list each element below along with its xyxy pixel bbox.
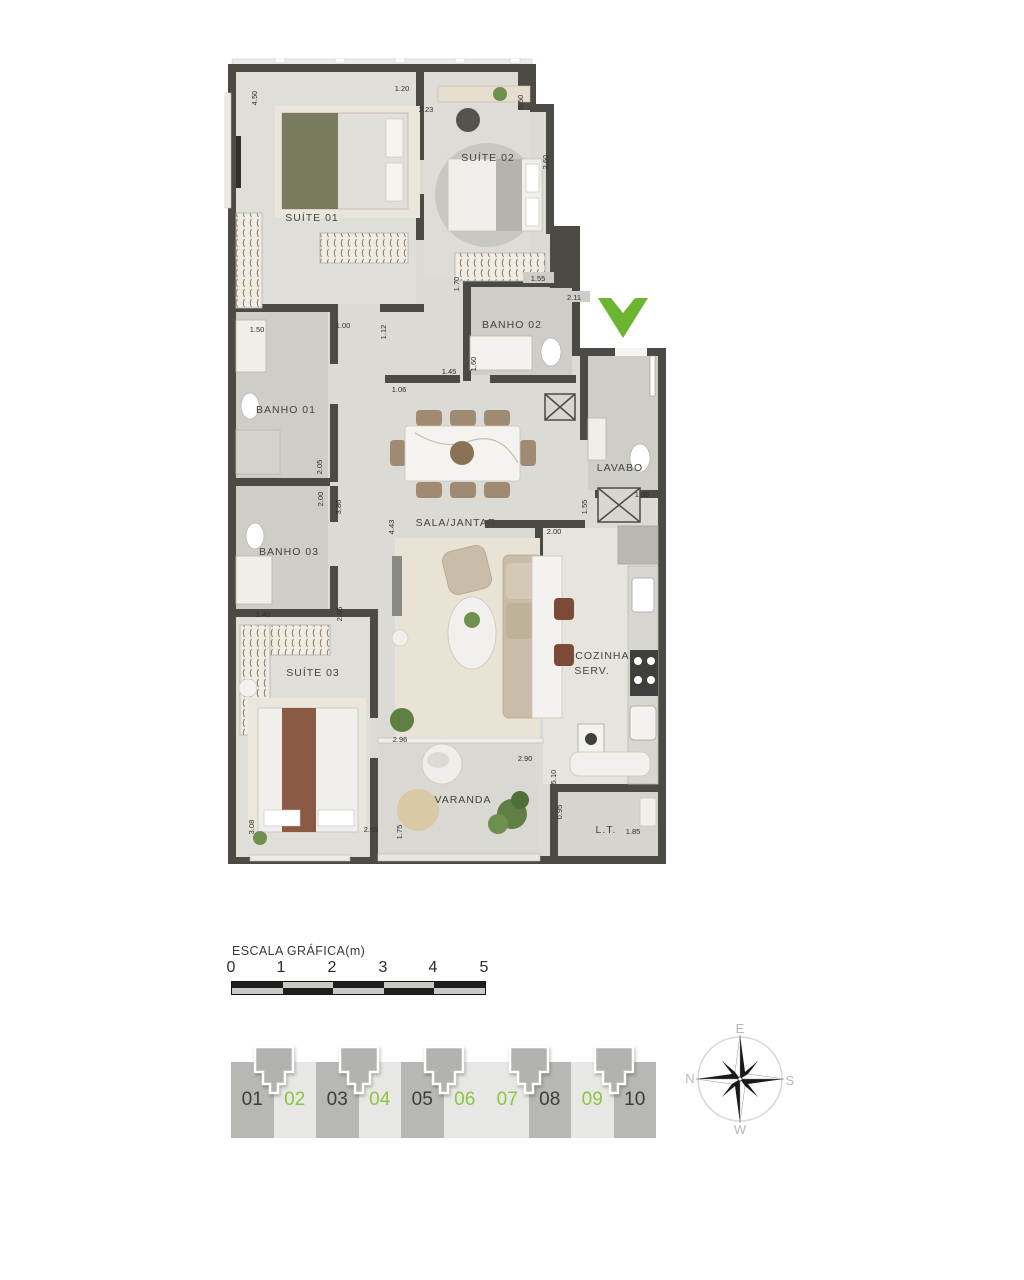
- unit-selector: 01 02 03 04 05 06 07 08 09 10: [231, 1044, 656, 1140]
- core-connector-icon: [422, 1044, 466, 1096]
- scale-bar-segment: [283, 988, 334, 994]
- dimension-label: 2.00: [316, 492, 325, 507]
- dimension-label: 1.60: [469, 357, 478, 372]
- dimension-label: 2.60: [541, 155, 550, 170]
- dimension-label: 2.96: [393, 735, 408, 744]
- dimension-label: 2.00: [547, 527, 562, 536]
- dimension-label: 1.35: [635, 490, 650, 499]
- living-area: [390, 538, 543, 738]
- room-label-cozinha-2: SERV.: [574, 665, 609, 677]
- room-label-lavabo: LAVABO: [597, 462, 643, 474]
- dimension-label: 4.50: [250, 91, 259, 106]
- scale-tick: 5: [480, 959, 489, 977]
- scale-ticks: 0 1 2 3 4 5: [231, 959, 484, 977]
- scale-tick: 3: [379, 959, 388, 977]
- compass-label-north: N: [685, 1071, 694, 1086]
- compass-center: [738, 1077, 742, 1081]
- dimension-label: 1.06: [392, 385, 407, 394]
- dimension-label: 1.85: [626, 827, 641, 836]
- dimension-label: 1.20: [395, 84, 410, 93]
- furniture-suite-03: [239, 679, 366, 845]
- dimension-label: 2.23: [419, 105, 434, 114]
- floor-plan: 4.50 1.20 2.23 0.50 2.60 1.70 1.55 2.11 …: [220, 58, 670, 868]
- scale-title: ESCALA GRÁFICA(m): [232, 944, 365, 958]
- scale-bar-segment: [232, 988, 283, 994]
- dimension-label: 2.05: [335, 607, 344, 622]
- core-connector-icon: [337, 1044, 381, 1096]
- dimension-label: 4.43: [387, 520, 396, 535]
- room-label-cozinha-1: COZINHA /: [575, 650, 637, 662]
- dimension-label: 2.11: [567, 293, 581, 302]
- green-check-icon: [598, 298, 648, 338]
- dimension-label: 1.12: [379, 325, 388, 340]
- scale-bar-segment: [434, 988, 485, 994]
- page: 4.50 1.20 2.23 0.50 2.60 1.70 1.55 2.11 …: [0, 0, 1024, 1280]
- dimension-label: 5.10: [549, 770, 558, 785]
- dimension-label: 0.95: [555, 805, 564, 820]
- room-label-suite-03: SUÍTE 03: [286, 666, 340, 679]
- dimension-label: 2.65: [364, 825, 379, 834]
- room-label-lt: L.T.: [596, 824, 617, 836]
- room-label-suite-01: SUÍTE 01: [285, 211, 339, 224]
- room-label-banho-01: BANHO 01: [256, 404, 316, 416]
- dimension-label: 1.45: [442, 367, 457, 376]
- dimension-label: 1.55: [531, 274, 546, 283]
- dimension-label: 0.50: [516, 95, 525, 110]
- dimension-label: 2.05: [315, 460, 324, 475]
- room-label-banho-02: BANHO 02: [482, 319, 542, 331]
- scale-bar: [231, 981, 486, 995]
- dimension-label: 1.40: [256, 610, 271, 619]
- scale-tick: 1: [277, 959, 286, 977]
- dimension-label: 3.86: [334, 500, 343, 515]
- core-connector-icon: [592, 1044, 636, 1096]
- room-label-suite-02: SUÍTE 02: [461, 151, 515, 164]
- scale-bar-segment: [333, 988, 384, 994]
- dimension-label: 3.08: [247, 820, 256, 835]
- compass-label-south: S: [786, 1073, 795, 1088]
- compass-rose: E N S W: [683, 1022, 797, 1136]
- scale-tick: 2: [328, 959, 337, 977]
- scale-tick: 0: [227, 959, 236, 977]
- core-connector-icon: [507, 1044, 551, 1096]
- dimension-label: 1.70: [452, 277, 461, 292]
- scale-bar-segment: [384, 988, 435, 994]
- room-label-sala-jantar: SALA/JANTAR: [416, 517, 497, 529]
- dimension-label: 1.00: [336, 321, 351, 330]
- room-label-banho-03: BANHO 03: [259, 546, 319, 558]
- core-connector-icon: [252, 1044, 296, 1096]
- scale-tick: 4: [429, 959, 438, 977]
- compass-label-east: E: [736, 1022, 745, 1036]
- dimension-label: 1.75: [395, 825, 404, 840]
- floor-plan-drawing: 4.50 1.20 2.23 0.50 2.60 1.70 1.55 2.11 …: [220, 58, 670, 868]
- compass-label-west: W: [734, 1122, 747, 1136]
- dimension-label: 1.55: [580, 500, 589, 515]
- dimension-label: 1.50: [250, 325, 265, 334]
- room-label-varanda: VARANDA: [435, 794, 492, 806]
- dimension-label: 2.90: [518, 754, 533, 763]
